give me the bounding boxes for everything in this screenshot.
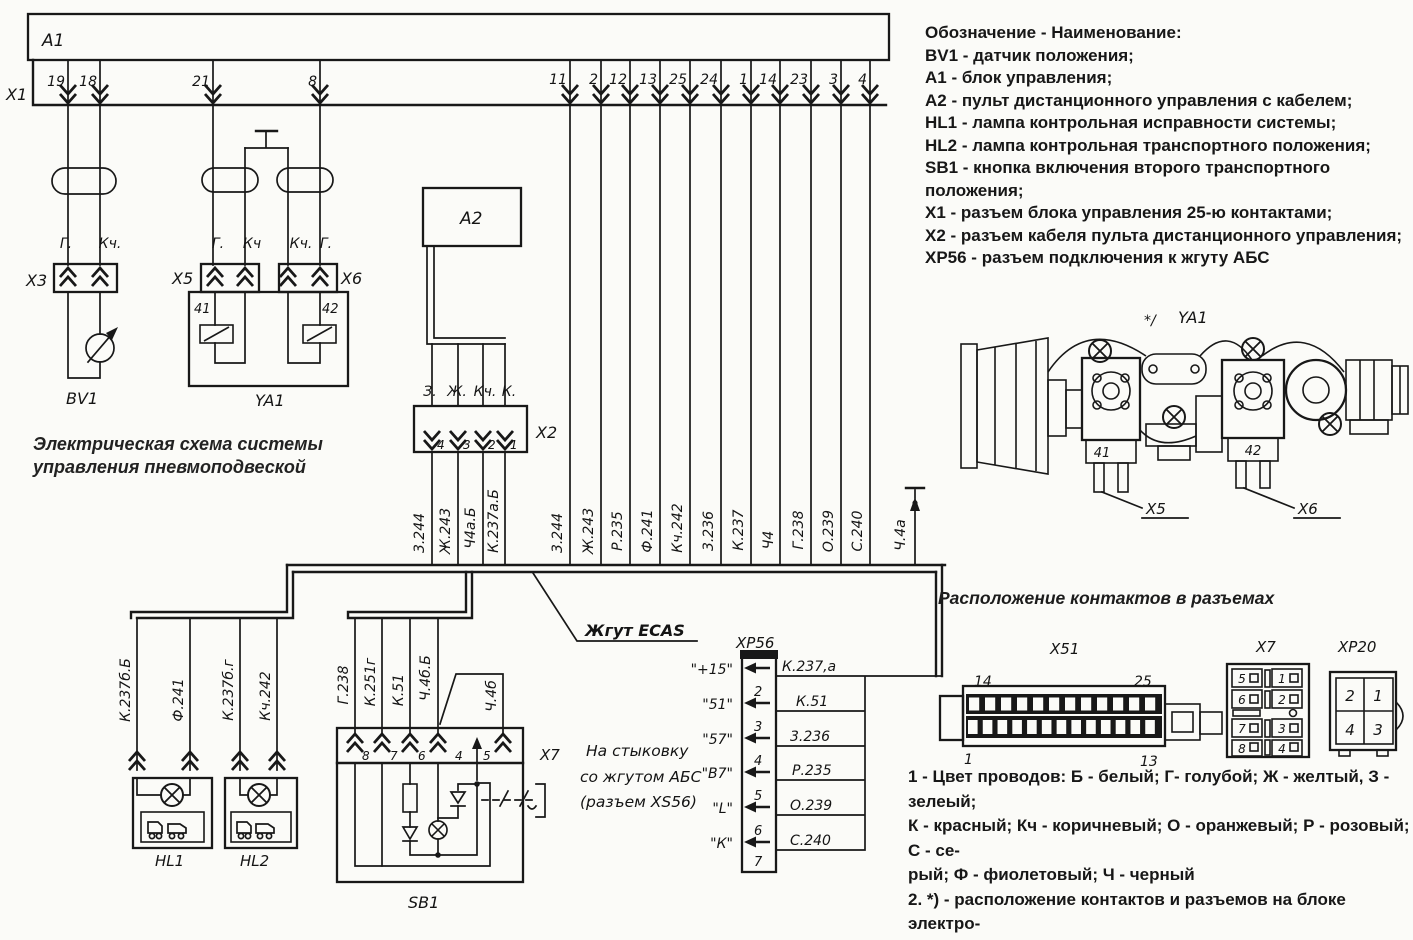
- x3-wire-color: Г.: [60, 236, 72, 252]
- x7-pin: 4: [1278, 742, 1286, 756]
- xp56-wire-label: Р.235: [792, 763, 832, 779]
- svg-text:18: 18: [79, 74, 97, 90]
- svg-text:На стыковку: На стыковку: [586, 742, 689, 760]
- x2-connector: З. Ж. Кч. К. 4 3 2 1 Х2: [414, 384, 557, 452]
- chassis-ground-wire: Ч.4а: [893, 488, 924, 565]
- note-line: пневмоклапанов: [908, 937, 1410, 940]
- x51-pin-corner: 14: [974, 674, 992, 690]
- hl-wires: К.237б.Б Ф.241 К.237б.г Кч.242: [118, 618, 285, 770]
- svg-text:К.237б.Б: К.237б.Б: [118, 658, 134, 722]
- x2-pin: 4: [437, 438, 445, 452]
- sb1-label: SB1: [408, 893, 439, 912]
- x51-label: Х51: [1049, 640, 1079, 658]
- contacts-heading: Расположение контактов в разъемах: [938, 588, 1274, 609]
- xp56-signal: "+15": [691, 662, 733, 678]
- note-line: рый; Ф - фиолетовый; Ч - черный: [908, 863, 1410, 888]
- svg-text:Г.238: Г.238: [336, 665, 352, 704]
- svg-text:Ж.243: Ж.243: [438, 508, 454, 555]
- xp56-pin: 6: [754, 824, 762, 839]
- resistor: [403, 784, 417, 812]
- xp56-wire-label: О.239: [790, 798, 832, 814]
- xp56-wire-label: К.237,а: [782, 659, 836, 675]
- a1-label: А1: [41, 31, 64, 51]
- note-line: К - красный; Кч - коричневый; О - оранже…: [908, 814, 1410, 863]
- xp56-pin: 3: [754, 720, 762, 735]
- xp20-pin: 4: [1345, 721, 1355, 739]
- x1-connector: Х1 1918 218 112 1213 2524 114 233 4: [5, 60, 886, 105]
- svg-text:19: 19: [47, 74, 65, 90]
- solenoid-41-number: 41: [194, 302, 211, 317]
- x6-wire-color: Г.: [320, 236, 332, 252]
- bv1-label: BV1: [66, 389, 98, 408]
- x2-wire-color: Кч.: [474, 384, 497, 400]
- svg-text:К.237б.г: К.237б.г: [221, 659, 237, 721]
- xp56-pin: 5: [754, 789, 762, 804]
- svg-text:11: 11: [549, 72, 567, 88]
- legend-item: HL1 - лампа контрольная исправности сист…: [925, 112, 1411, 135]
- solenoid-42-number: 42: [322, 302, 339, 317]
- xp56-signal: "57": [702, 732, 733, 748]
- svg-text:Ч.4б: Ч.4б: [484, 680, 500, 712]
- x1-pin-numbers: 1918 218 112 1213 2524 114 233 4: [47, 72, 867, 90]
- x2-wire-color: Ж.: [446, 384, 467, 400]
- diode-icon: [403, 827, 417, 841]
- svg-text:К.237: К.237: [731, 509, 747, 550]
- xp56-signal: "51": [702, 697, 733, 713]
- x7-pin: 1: [1278, 672, 1286, 686]
- lamp-icon: [248, 784, 270, 806]
- x7-pin: 8: [1238, 742, 1246, 756]
- hl2-lamp: HL2: [225, 778, 297, 870]
- svg-text:24: 24: [700, 72, 718, 88]
- svg-text:(разъем ХS56): (разъем ХS56): [580, 793, 697, 811]
- diode-icon: [438, 784, 477, 818]
- ya1-label: YA1: [255, 391, 285, 410]
- svg-text:1: 1: [739, 72, 748, 88]
- sb1-pin: 7: [390, 749, 398, 763]
- legend-item: Х1 - разъем блока управления 25-ю контак…: [925, 202, 1411, 225]
- sb1-pin: 8: [362, 749, 370, 763]
- svg-text:К.237а.Б: К.237а.Б: [486, 489, 502, 553]
- legend-item: BV1 - датчик положения;: [925, 45, 1411, 68]
- x5-wire-color: Кч: [243, 236, 261, 252]
- x7-label: Х7: [1255, 638, 1276, 656]
- x2-pin: 2: [488, 438, 496, 452]
- svg-text:К.251г: К.251г: [363, 657, 379, 706]
- x3-connector: Г. Кч. Х3: [25, 236, 121, 292]
- grommet: [202, 168, 333, 192]
- contacts-x7: Х7 5 1 6 2 7 3 8 4: [1227, 638, 1309, 757]
- legend-item: Х2 - разъем кабеля пульта дистанционного…: [925, 225, 1411, 248]
- a1-block: А1: [28, 14, 889, 60]
- svg-text:К.51: К.51: [391, 674, 407, 706]
- x2-wire-color: З.: [423, 384, 436, 400]
- sensor-arrow-icon: [88, 334, 112, 362]
- screw-icon: [1242, 338, 1264, 360]
- svg-text:2: 2: [589, 72, 598, 88]
- svg-text:Кч.242: Кч.242: [258, 671, 274, 720]
- svg-text:13: 13: [639, 72, 657, 88]
- x5-label: Х5: [171, 269, 193, 288]
- schematic-caption: Электрическая схема системы управления п…: [33, 433, 323, 479]
- xp56-connector: ХР56 2 3 4 5 6 7 "+15" "51" "57" "В7" "L…: [691, 634, 942, 872]
- svg-text:3.236: 3.236: [701, 511, 717, 551]
- x2-pin: 3: [463, 438, 471, 452]
- xp56-pin: 2: [754, 685, 762, 700]
- legend-item: HL2 - лампа контрольная транспортного по…: [925, 135, 1411, 158]
- x6-wire-color: Кч.: [290, 236, 313, 252]
- legend-item: А1 - блок управления;: [925, 67, 1411, 90]
- sb1-internal-circuit: [355, 737, 545, 866]
- x6-label: Х6: [340, 269, 362, 288]
- solenoid-41-number: 41: [1094, 446, 1111, 461]
- a2-cable: [427, 246, 505, 406]
- sb1-wires: Г.238 К.251г К.51 Ч.4б.Б Ч.4б: [336, 618, 503, 733]
- x2-wire-color: К.: [502, 384, 516, 400]
- svg-text:14: 14: [759, 72, 777, 88]
- svg-text:О.239: О.239: [821, 510, 837, 552]
- legend-item: SB1 - кнопка включения второго транспорт…: [925, 157, 1411, 202]
- svg-text:Ж.243: Ж.243: [581, 508, 597, 555]
- xp56-signal: "К": [710, 836, 733, 852]
- svg-text:23: 23: [790, 72, 808, 88]
- hl2-label: HL2: [240, 852, 269, 870]
- sb1-pin: 4: [455, 749, 463, 763]
- truck-icon: [237, 822, 274, 839]
- svg-text:Р.235: Р.235: [610, 511, 626, 551]
- a2-label: А2: [459, 209, 482, 229]
- footnote-mark: */: [1144, 313, 1157, 329]
- x7-reference-label: Х7: [539, 746, 560, 764]
- contacts-xp20: ХР20 2 1 4 3: [1330, 638, 1403, 756]
- hl1-lamp: HL1: [133, 778, 212, 870]
- xp20-pin: 3: [1373, 721, 1383, 739]
- xp56-wire-label: С.240: [790, 833, 831, 849]
- xp56-wire-label: К.51: [796, 694, 828, 710]
- schematic-sheet: А1 Х1 1918 218 112 1213 2524 114 233 4 Г…: [0, 0, 1413, 940]
- x7-pin: 6: [1238, 693, 1246, 707]
- svg-text:12: 12: [609, 72, 627, 88]
- ecas-callout: Жгут ECAS: [533, 573, 697, 641]
- a2-block: А2: [423, 188, 521, 246]
- xp20-label: ХР20: [1337, 638, 1376, 656]
- x7-pin: 3: [1278, 722, 1286, 736]
- x7-pin: 5: [1238, 672, 1246, 686]
- x5-connector: Г. Кч Х5: [171, 236, 261, 292]
- x6-illustration-label: Х6: [1297, 500, 1318, 518]
- x5-illustration-label: Х5: [1145, 500, 1166, 518]
- lamp-icon: [161, 784, 183, 806]
- x2-pin: 1: [510, 438, 518, 452]
- x6-connector: Кч. Г. Х6: [279, 236, 362, 292]
- legend: Обозначение - Наименование: BV1 - датчик…: [925, 22, 1411, 270]
- truck-icon: [148, 822, 186, 839]
- sb1-pin: 6: [418, 749, 426, 763]
- xp56-signal: "В7": [702, 766, 733, 782]
- svg-text:С.240: С.240: [850, 510, 866, 551]
- sb1-button-block: 8 7 6 4 5 SB1: [337, 728, 545, 912]
- x3-label: Х3: [25, 271, 47, 290]
- caption-line: Электрическая схема системы: [33, 433, 323, 456]
- bv1-sensor: BV1: [66, 292, 118, 408]
- svg-text:Ч4а.Б: Ч4а.Б: [463, 507, 479, 548]
- a2-branch-wire-labels: 3.244 Ж.243 Ч4а.Б К.237а.Б: [412, 489, 502, 555]
- svg-text:3: 3: [829, 72, 838, 88]
- grommet: [52, 168, 116, 194]
- x5-wire-color: Г.: [212, 236, 224, 252]
- svg-text:Ф.241: Ф.241: [640, 509, 656, 552]
- svg-text:25: 25: [669, 72, 687, 88]
- x7-pin: 2: [1278, 693, 1286, 707]
- svg-text:Ч.4б.Б: Ч.4б.Б: [418, 655, 434, 701]
- xp56-signal: "L": [712, 801, 733, 817]
- svg-text:со жгутом АБС: со жгутом АБС: [580, 768, 702, 786]
- xp20-pin: 2: [1345, 687, 1355, 705]
- xp56-pin: 7: [754, 855, 763, 870]
- svg-text:Ф.241: Ф.241: [171, 678, 187, 721]
- note-line: 2. *) - расположение контактов и разъемо…: [908, 888, 1410, 937]
- svg-text:3.244: 3.244: [412, 513, 428, 553]
- ground-wire-label: Ч.4а: [893, 519, 909, 551]
- svg-text:3.244: 3.244: [550, 513, 566, 553]
- abs-connection-note: На стыковку со жгутом АБС (разъем ХS56): [580, 742, 702, 811]
- caption-line: управления пневмоподвеской: [33, 456, 323, 479]
- xp56-label: ХР56: [735, 634, 774, 652]
- sb1-pin: 5: [483, 749, 491, 763]
- legend-heading: Обозначение - Наименование:: [925, 22, 1411, 45]
- ya1-block: 41 42 YA1: [189, 292, 348, 410]
- xp56-wire-label: 3.236: [790, 729, 830, 745]
- x1-pin-arrows: [60, 85, 878, 103]
- svg-text:Кч.242: Кч.242: [670, 503, 686, 552]
- x7-pin: 7: [1238, 722, 1246, 736]
- solenoid-42-number: 42: [1245, 444, 1262, 459]
- xp56-pin: 4: [754, 754, 762, 769]
- svg-text:4: 4: [858, 72, 867, 88]
- notes: 1 - Цвет проводов: Б - белый; Г- голубой…: [908, 765, 1410, 940]
- ground-icon: [245, 131, 288, 148]
- ya1-illustration-label: YA1: [1178, 308, 1208, 327]
- main-wire-labels: 3.244 Ж.243 Р.235 Ф.241 Кч.242 3.236 К.2…: [550, 503, 866, 555]
- ecas-label: Жгут ECAS: [584, 621, 685, 640]
- svg-text:Г.238: Г.238: [791, 510, 807, 549]
- note-line: 1 - Цвет проводов: Б - белый; Г- голубой…: [908, 765, 1410, 814]
- svg-text:Ч4: Ч4: [761, 531, 777, 550]
- x2-label: Х2: [535, 423, 557, 442]
- contacts-x51: Х51 14 25 1 13: [940, 640, 1222, 770]
- lamp-icon: [429, 821, 447, 839]
- x51-pin-corner: 25: [1134, 674, 1152, 690]
- svg-text:8: 8: [308, 74, 317, 90]
- legend-item: А2 - пульт дистанционного управления с к…: [925, 90, 1411, 113]
- x1-label: Х1: [5, 85, 27, 104]
- hl1-label: HL1: [155, 852, 184, 870]
- svg-text:21: 21: [192, 74, 210, 90]
- x3-wire-color: Кч.: [99, 236, 122, 252]
- legend-item: ХР56 - разъем подключения к жгуту АБС: [925, 247, 1411, 270]
- xp20-pin: 1: [1373, 687, 1383, 705]
- valve-block-illustration: */ YA1 41 42 Х5 Х6: [961, 308, 1408, 518]
